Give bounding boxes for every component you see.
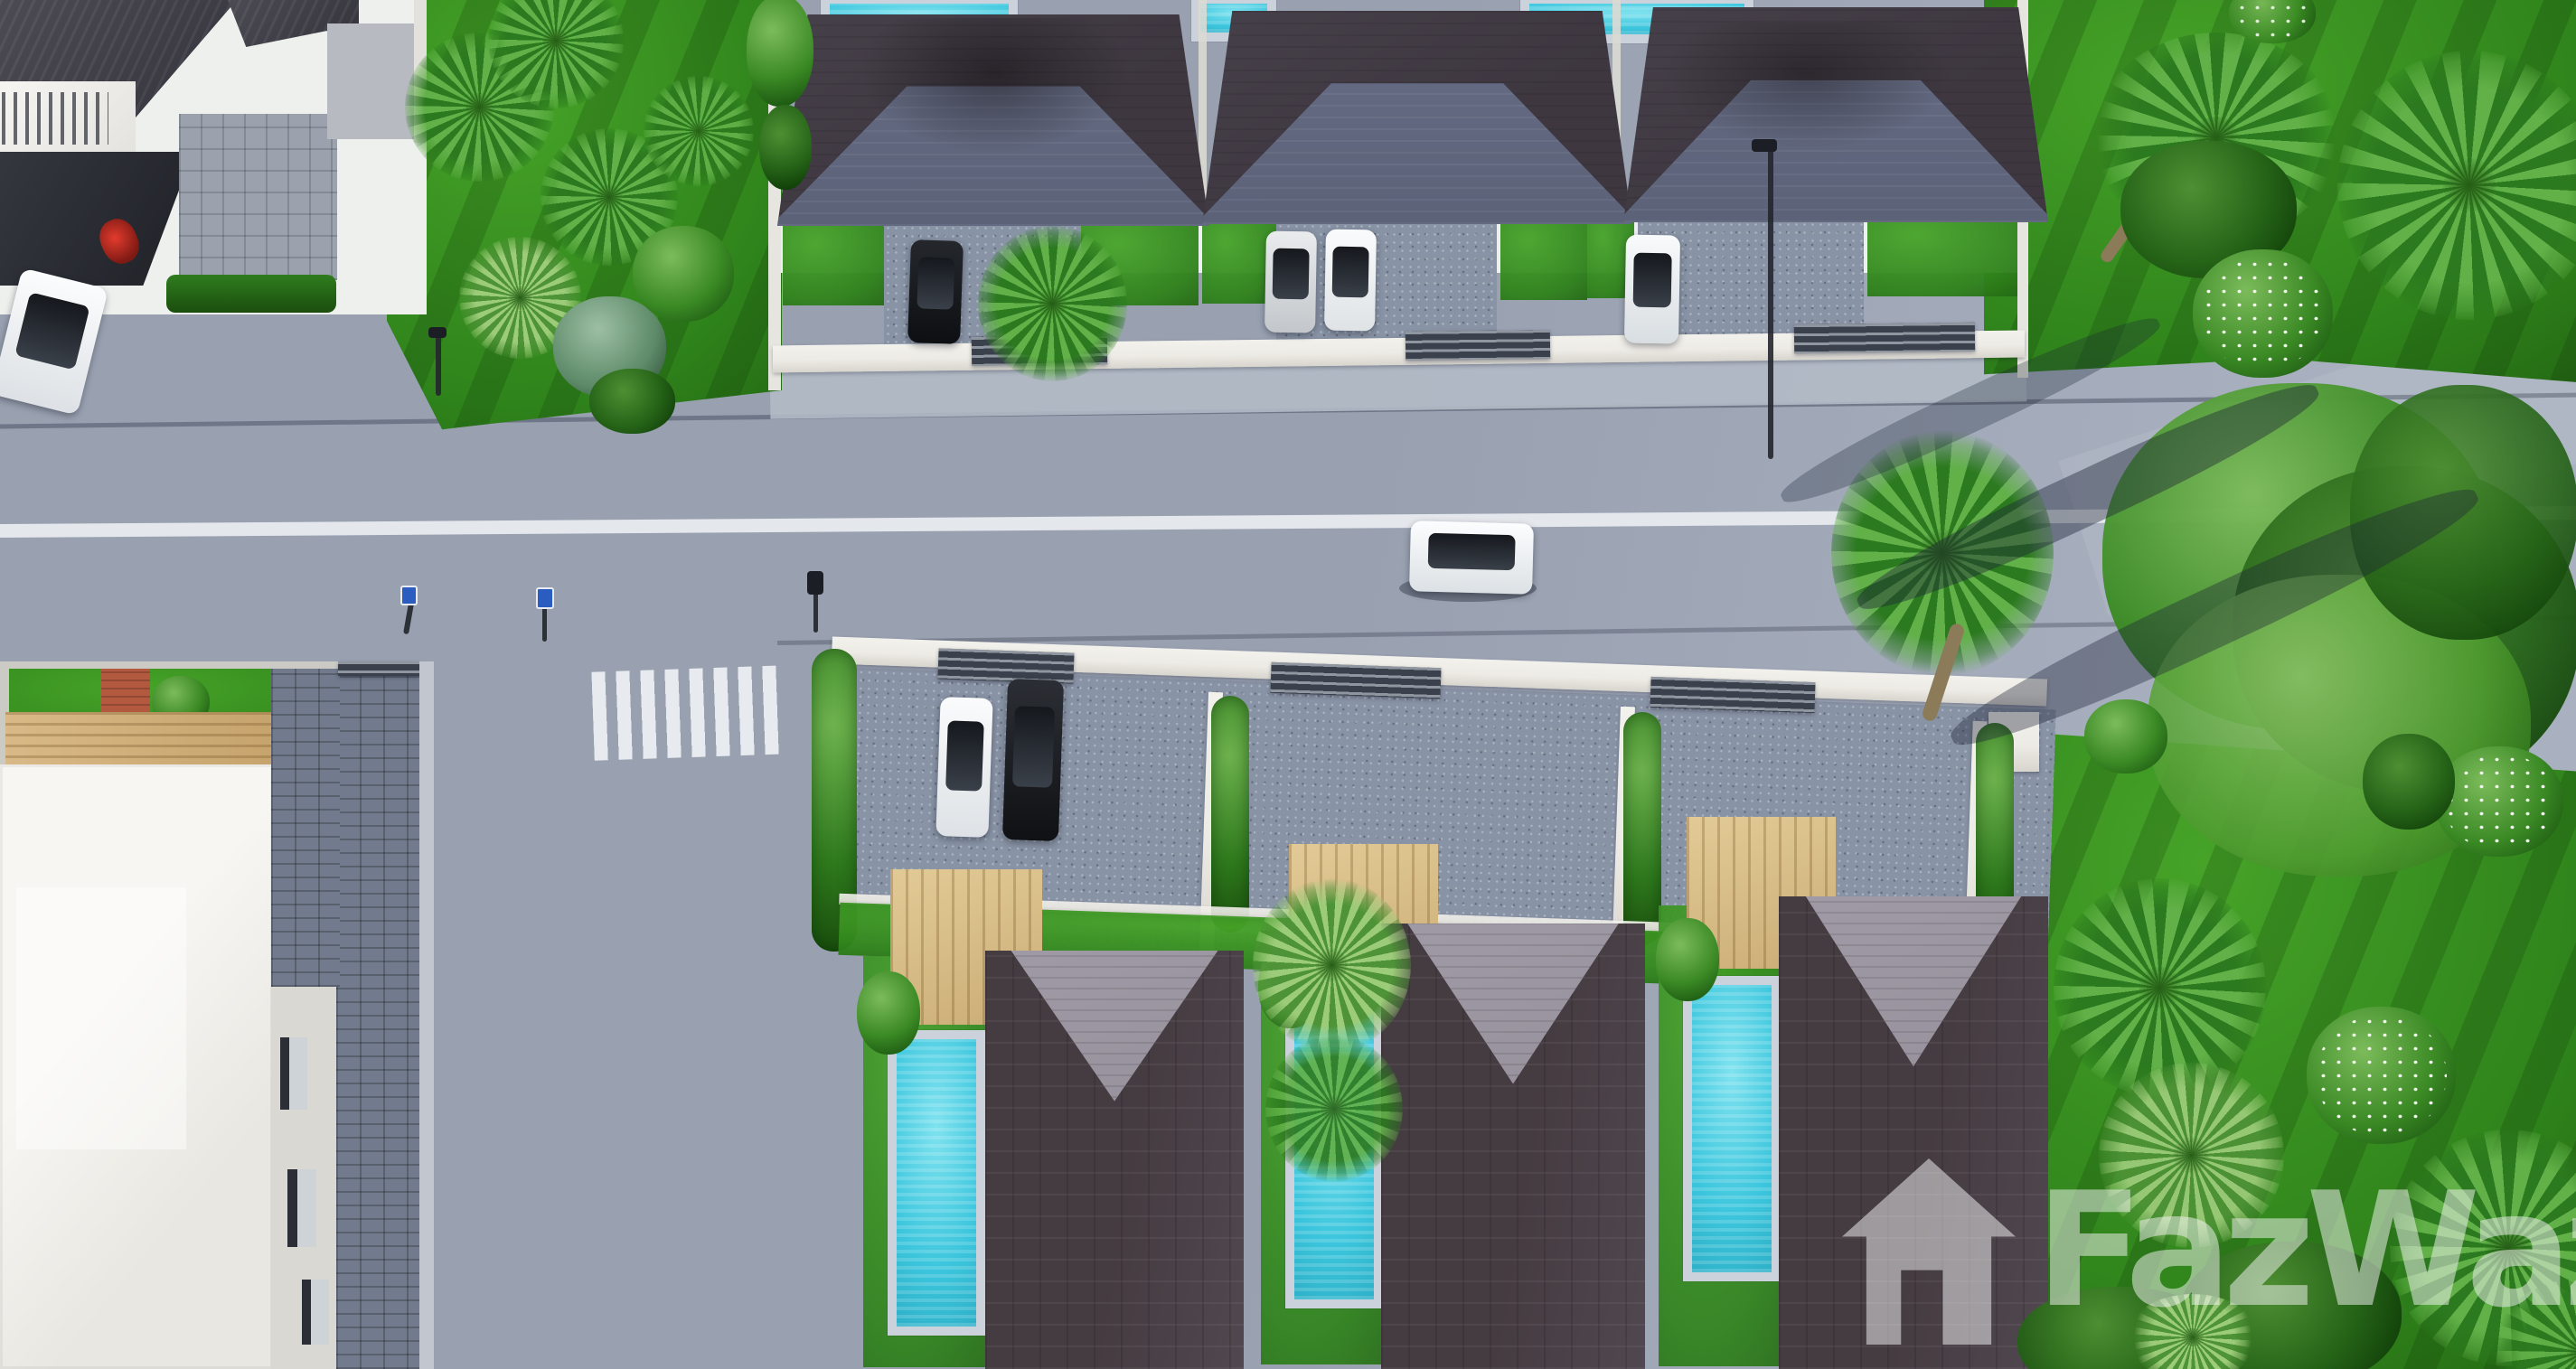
garden-bush	[633, 226, 734, 322]
villa-front-lawn	[783, 226, 884, 305]
left-house-driveway-upper	[271, 669, 340, 987]
flowering-bush	[2435, 746, 2563, 857]
street-lamp-head	[1752, 139, 1777, 152]
palm-tree	[1253, 878, 1411, 1052]
villa-gable-roof	[985, 951, 1244, 1369]
left-house-window	[287, 1169, 316, 1247]
corner-house-hedge	[166, 275, 336, 313]
tree-shadow-on-roof	[1663, 23, 1952, 149]
villa-gate	[1794, 323, 1975, 353]
left-house-gate	[338, 661, 419, 676]
villa-front-lawn	[1867, 219, 2017, 296]
left-house-window	[280, 1037, 307, 1110]
palm-tree	[644, 76, 754, 186]
garden-bush	[1656, 918, 1719, 1001]
street-sign	[400, 586, 418, 605]
parked-black-sedan	[907, 239, 964, 344]
villa-gate	[1270, 662, 1441, 699]
street-lamp-pole	[1768, 145, 1773, 459]
left-house-window	[302, 1280, 329, 1345]
fazwaz-logo-text: FazWaz	[2035, 1158, 2576, 1345]
street-lamp-head	[428, 327, 447, 338]
corner-house-balcony-railing	[2, 92, 108, 145]
villa-hip-roof	[1202, 11, 1632, 224]
parked-white-car	[1324, 230, 1377, 332]
aerial-render-canvas: FazWaz	[0, 0, 2576, 1369]
garden-bush	[2363, 734, 2455, 830]
fazwaz-watermark: FazWaz	[1842, 1158, 2576, 1345]
left-house-driveway	[336, 669, 421, 1369]
left-house-bbq	[101, 669, 150, 714]
garden-bush	[589, 369, 675, 434]
villa-gate	[1406, 330, 1550, 361]
street-lamp-pole	[436, 334, 441, 396]
driving-white-suv	[1409, 520, 1534, 595]
street-sign	[536, 587, 554, 609]
swimming-pool	[888, 1030, 985, 1336]
palm-tree	[978, 226, 1127, 381]
villa-front-lawn	[1500, 222, 1587, 300]
parked-white-car	[935, 697, 992, 838]
villa-gate	[1650, 677, 1815, 713]
palm-tree	[2054, 878, 2266, 1097]
banana-plant	[759, 105, 812, 190]
parked-white-suv	[1624, 234, 1680, 343]
corner-house-courtyard	[179, 114, 337, 280]
flowering-bush	[2307, 1007, 2456, 1144]
left-house-roof-step	[16, 887, 186, 1149]
bird-of-paradise-hedge	[1211, 696, 1249, 933]
villa-gable-roof	[1381, 924, 1645, 1369]
fazwaz-logo-house-icon	[1842, 1158, 2016, 1345]
left-house-wood-deck	[5, 712, 307, 768]
parked-black-pickup	[1002, 679, 1064, 841]
traffic-post-head	[807, 571, 823, 595]
villa-gate	[937, 648, 1074, 683]
garden-bush	[857, 971, 920, 1055]
swimming-pool	[1683, 976, 1781, 1281]
palm-tree	[1265, 1036, 1403, 1182]
left-house-curb	[419, 661, 434, 1369]
pedestrian-crossing	[591, 665, 787, 760]
parked-silver-car	[1264, 231, 1317, 333]
bird-of-paradise-hedge	[1623, 712, 1661, 945]
banana-plant	[747, 0, 813, 107]
tree-shadow-on-roof	[859, 18, 1130, 154]
flowering-bush	[2193, 249, 2333, 378]
garden-bush	[2084, 699, 2167, 774]
